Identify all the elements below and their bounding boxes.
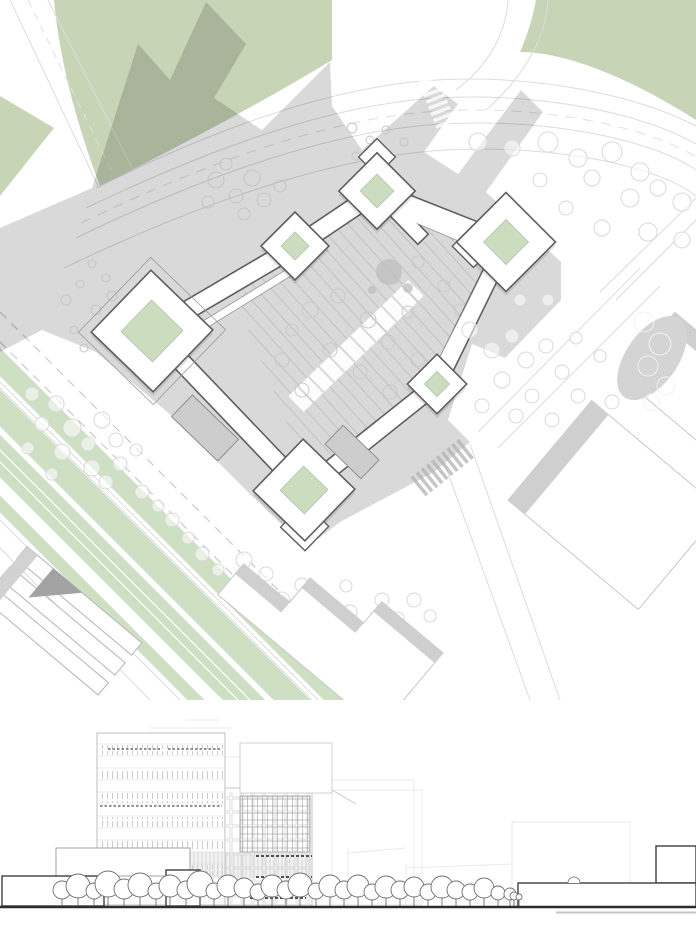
elevation-drawing (0, 700, 696, 929)
architectural-drawing-page (0, 0, 696, 929)
site-plan-drawing (0, 0, 696, 700)
